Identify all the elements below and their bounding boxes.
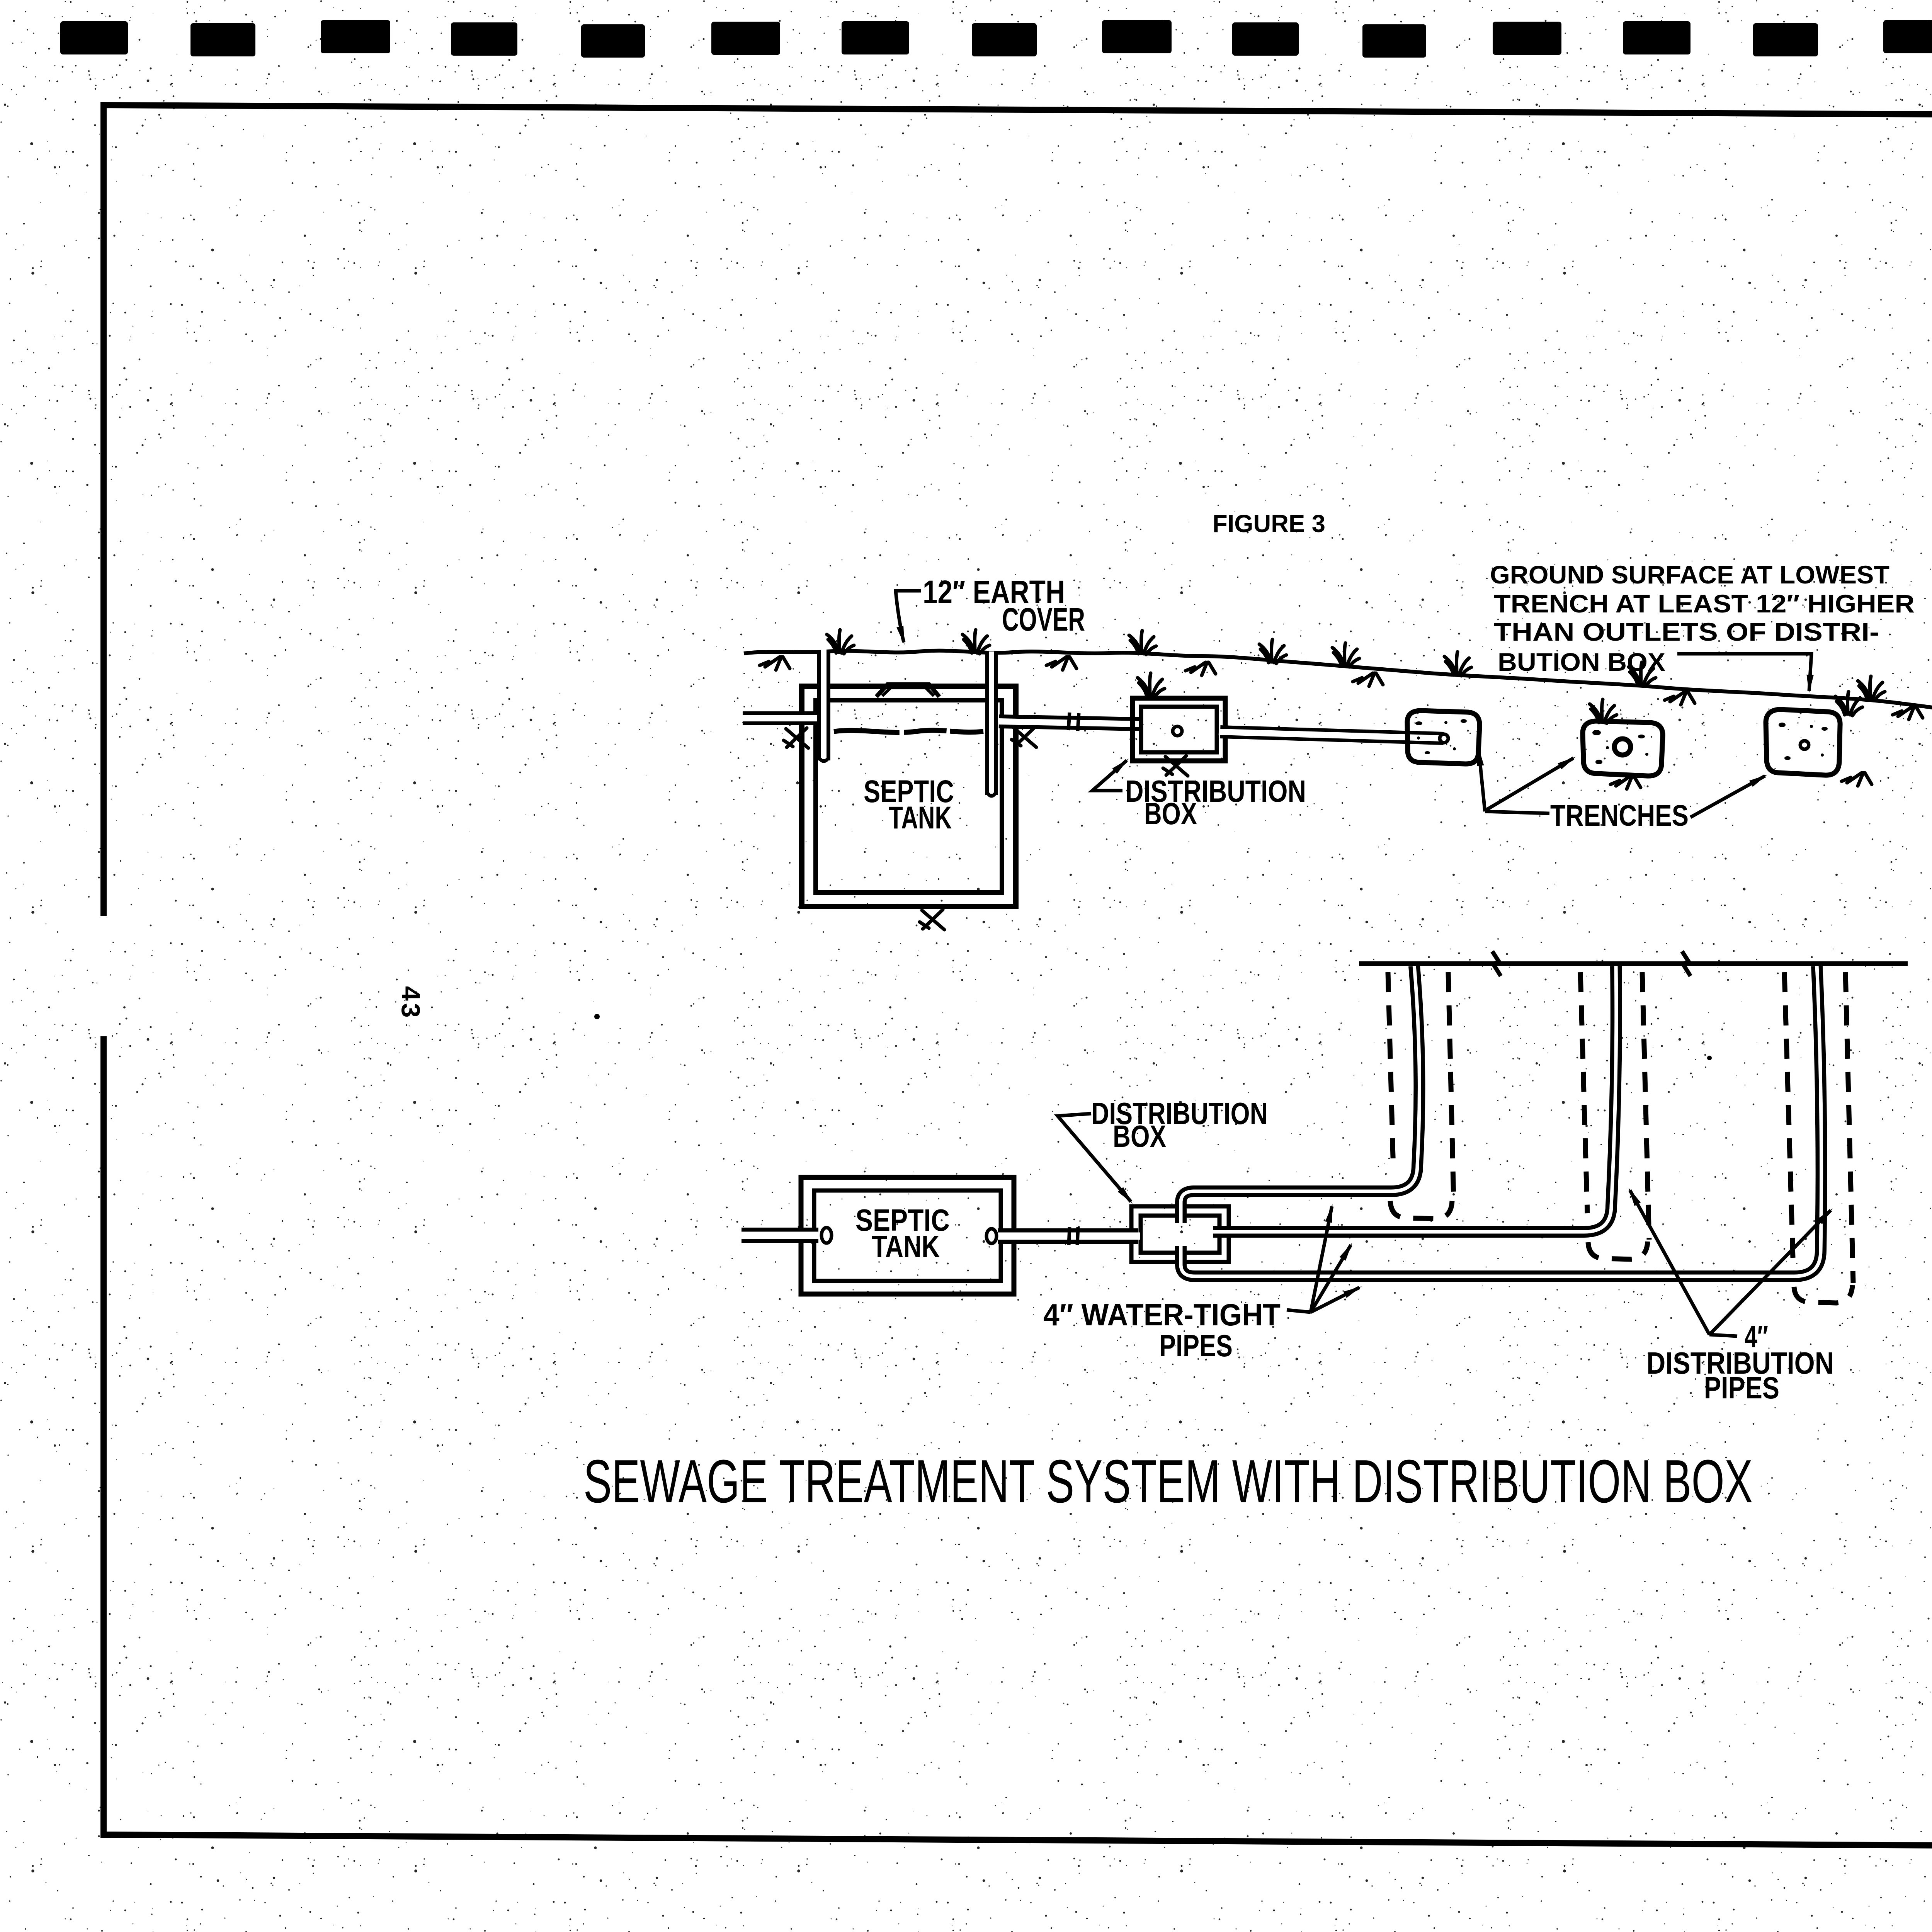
svg-text:BUTION BOX: BUTION BOX: [1498, 648, 1665, 676]
svg-text:43: 43: [396, 986, 425, 1020]
svg-text:PIPES: PIPES: [1159, 1328, 1233, 1363]
svg-text:TRENCH AT LEAST 12″ HIGHER: TRENCH AT LEAST 12″ HIGHER: [1494, 589, 1915, 618]
svg-text:GROUND SURFACE AT LOWEST: GROUND SURFACE AT LOWEST: [1490, 560, 1889, 589]
svg-text:PIPES: PIPES: [1704, 1371, 1779, 1405]
svg-text:SEWAGE TREATMENT SYSTEM WITH D: SEWAGE TREATMENT SYSTEM WITH DISTRIBUTIO…: [583, 1447, 1753, 1515]
svg-text:THAN OUTLETS OF DISTRI-: THAN OUTLETS OF DISTRI-: [1494, 617, 1879, 646]
svg-text:BOX: BOX: [1144, 796, 1197, 831]
svg-text:TANK: TANK: [872, 1229, 940, 1264]
svg-text:COVER: COVER: [1002, 601, 1085, 638]
svg-text:4″ WATER-TIGHT: 4″ WATER-TIGHT: [1043, 1298, 1281, 1332]
svg-text:FIGURE 3: FIGURE 3: [1213, 510, 1325, 537]
svg-text:TANK: TANK: [889, 800, 952, 835]
svg-text:TRENCHES: TRENCHES: [1550, 799, 1689, 832]
svg-text:BOX: BOX: [1113, 1119, 1166, 1153]
